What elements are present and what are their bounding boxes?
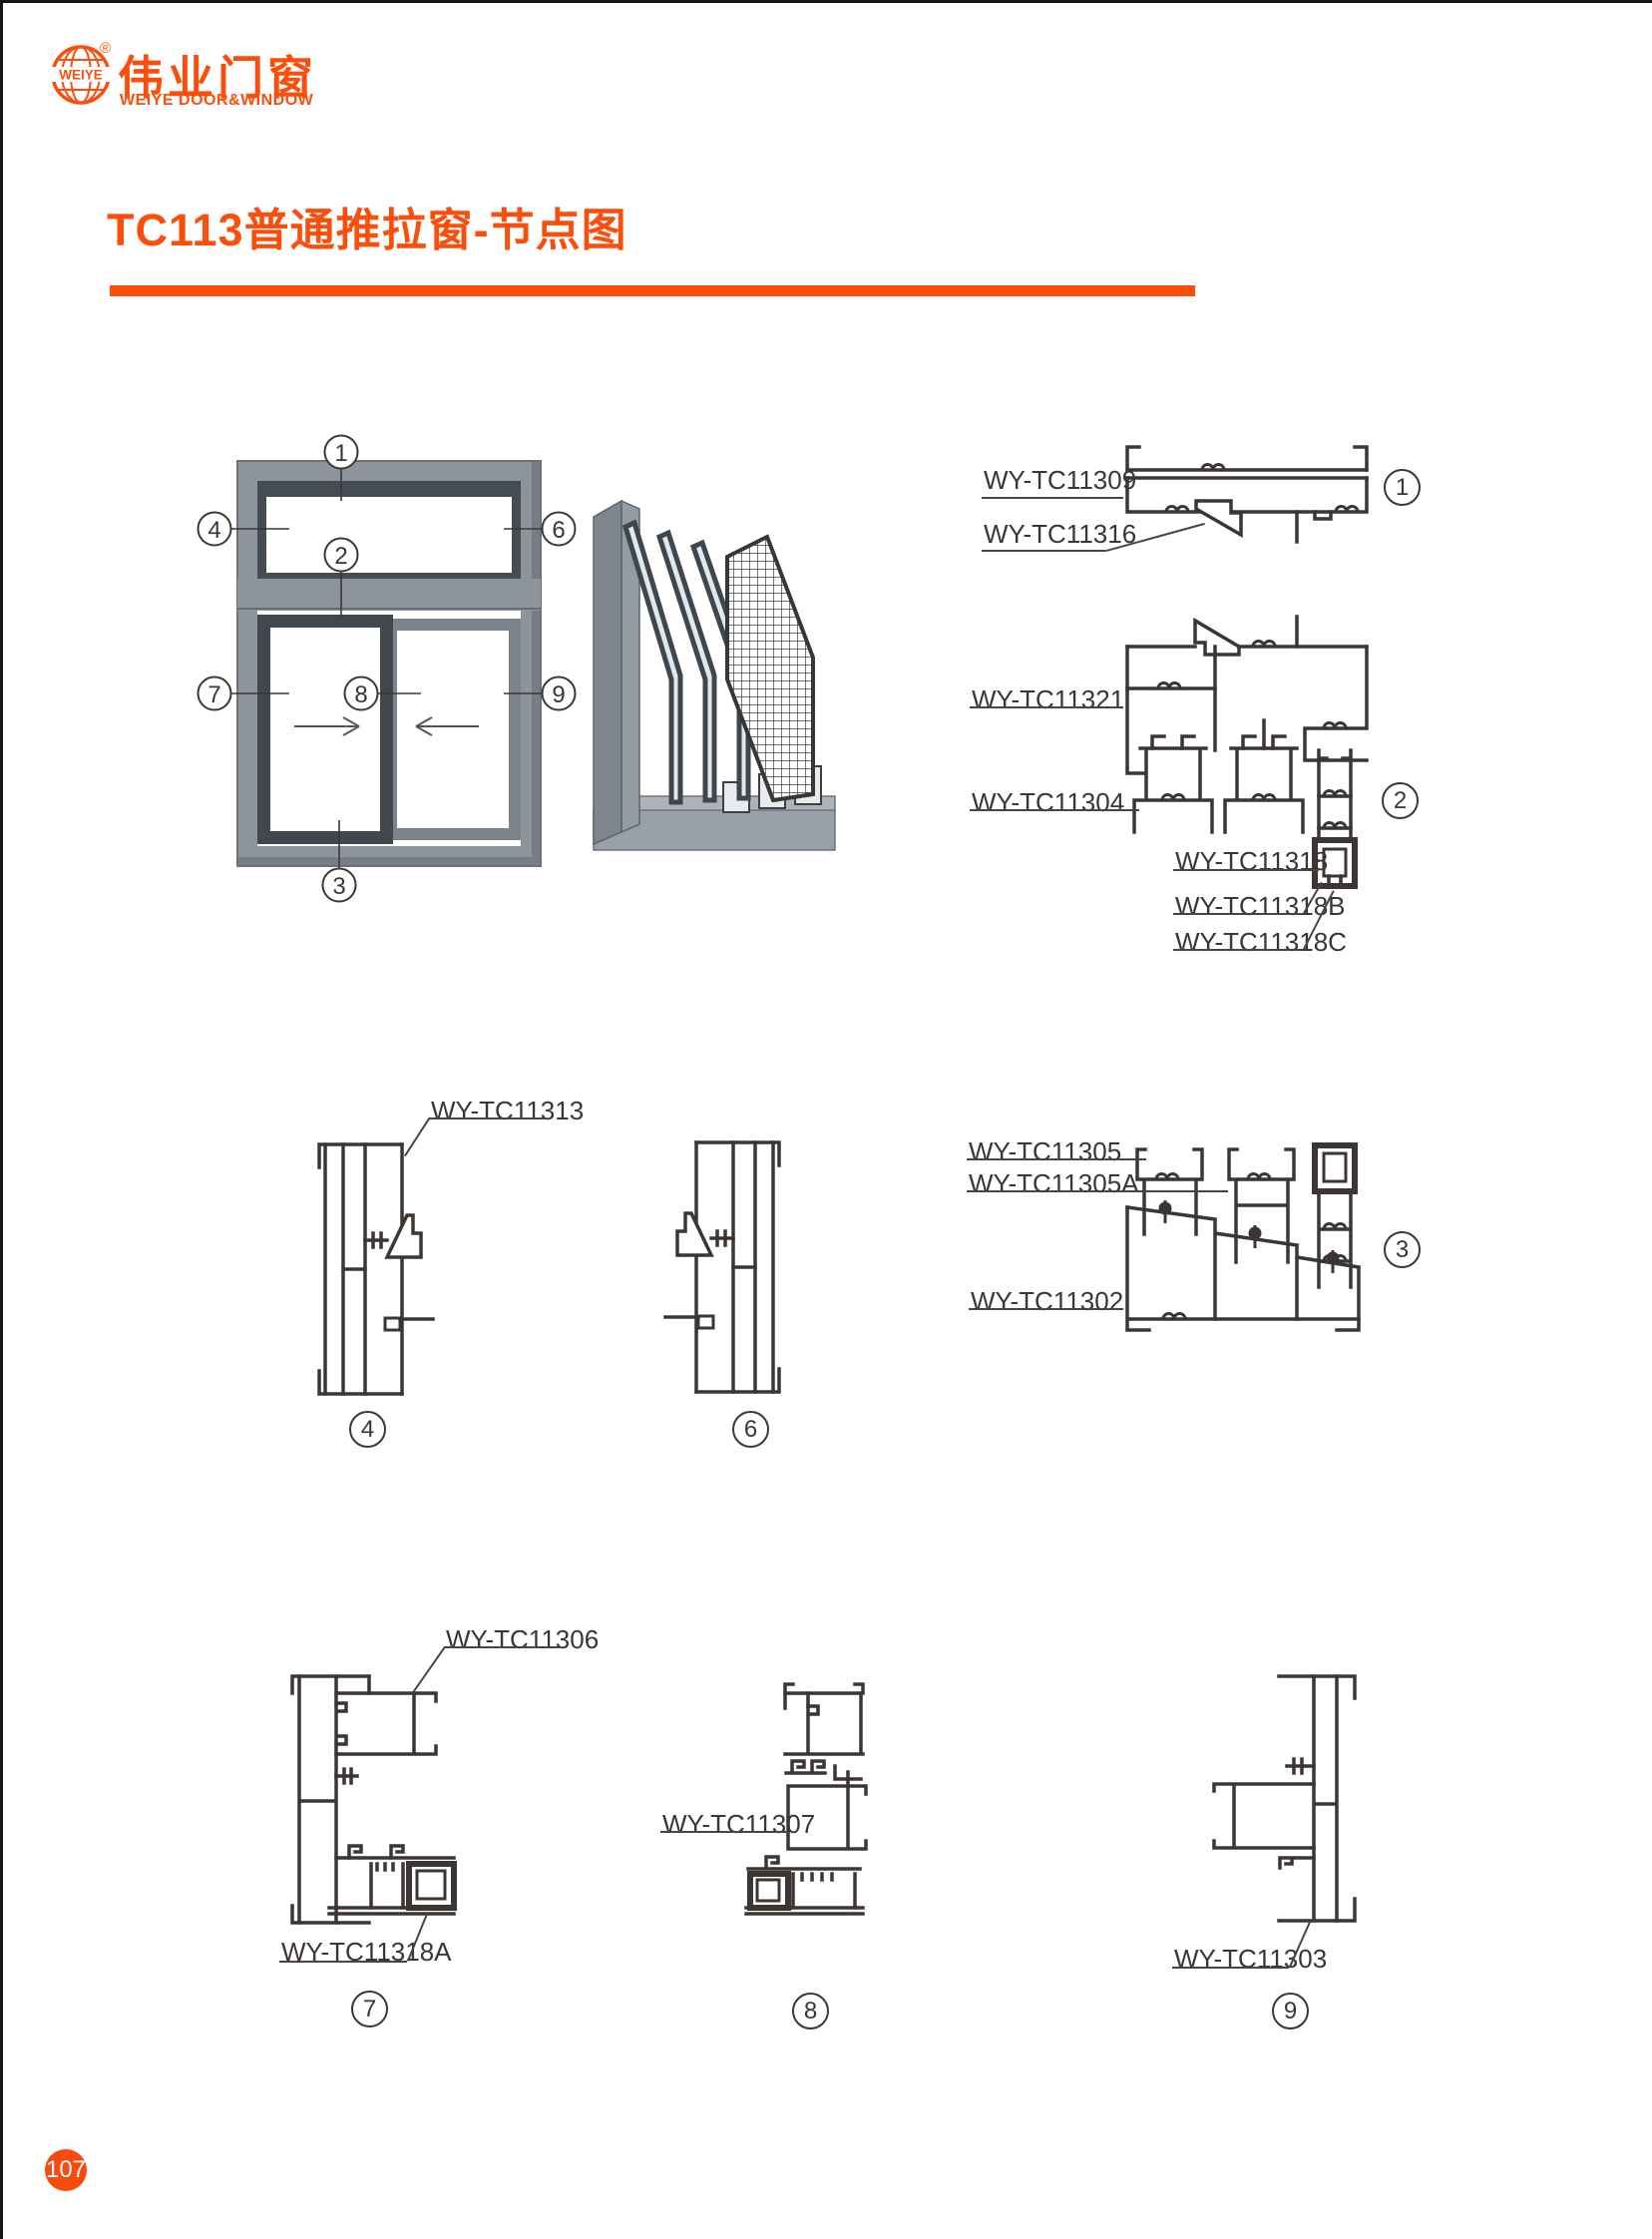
leader-line [982,497,1123,499]
part-label: WY-TC11303 [1174,1944,1327,1975]
part-label: WY-TC11318A [281,1937,452,1968]
detail-7-drawing [287,1641,462,1936]
leader-line [1173,913,1303,915]
part-label: WY-TC11306 [446,1624,599,1655]
page-title: TC113普通推拉窗-节点图 [107,194,627,258]
detail-7-badge: 7 [351,1991,388,2027]
part-label: WY-TC11305A [969,1168,1139,1199]
callout-6: 6 [552,517,565,544]
detail-8-badge: 8 [792,1993,829,2029]
part-label: WY-TC11321 [972,684,1124,715]
globe-label: WEIYE [59,68,103,83]
callout-2: 2 [334,543,347,570]
right-sash-glass [397,631,509,828]
leader-line [967,1190,1228,1192]
glazing-clip [677,1213,711,1255]
leader-line [967,1158,1146,1160]
left-sash-glass [270,628,380,831]
detail-3-drawing [1119,1137,1379,1347]
detail-6-badge: 6 [732,1411,769,1448]
document-page: WEIYE ® 伟业门窗 WEIYE DOOR&WINDOW TC113普通推拉… [0,0,1652,2239]
callout-4: 4 [207,517,220,544]
part-label: WY-TC11302 [971,1286,1123,1317]
detail-4-badge: 4 [349,1411,386,1448]
leader-line [970,706,1121,708]
scan-edge-left [0,0,3,2239]
fixed-pane-glass [266,497,512,573]
glazing-clip [1195,621,1239,655]
leader-line [1173,949,1303,951]
leader-line [1173,869,1319,871]
part-label: WY-TC11313 [431,1096,584,1126]
leader-line [279,1961,407,1963]
detail-4-drawing [317,1137,452,1402]
leader-line [982,550,1106,552]
detail-9-badge: 9 [1272,1993,1309,2029]
title-rule [110,285,1195,296]
scan-edge-top [0,0,1652,3]
registered-mark: ® [100,40,111,57]
callout-1: 1 [334,440,347,467]
detail-6-drawing [646,1135,781,1400]
callout-3: 3 [332,873,345,900]
glazing-clip [1196,501,1241,535]
part-label: WY-TC11304 [972,787,1124,818]
leader-line [1172,1967,1289,1969]
outer-frame-slab [594,501,621,844]
part-label: WY-TC11316 [984,519,1136,550]
detail-2-badge: 2 [1382,782,1419,819]
part-label: WY-TC11318C [1175,927,1347,958]
profile-3d-render [574,465,853,859]
transom-bar [237,579,541,611]
page-number-badge: 107 [45,2149,87,2191]
part-label: WY-TC11307 [662,1809,815,1840]
callout-7: 7 [207,681,220,708]
leader-line [429,1118,547,1119]
leader-line [660,1831,788,1833]
brand-name-en: WEIYE DOOR&WINDOW [120,92,313,110]
glazing-clip [387,1215,421,1257]
part-label: WY-TC11309 [984,465,1136,496]
detail-1-badge: 1 [1384,469,1421,506]
part-label: WY-TC11305 [969,1136,1121,1167]
callout-8: 8 [354,681,367,708]
window-elevation-diagram: 1 4 6 2 7 8 9 3 [140,419,609,923]
leader-line [970,809,1139,811]
leader-line [444,1646,562,1648]
leader-line [969,1308,1123,1310]
detail-3-badge: 3 [1384,1231,1421,1268]
callout-9: 9 [552,681,565,708]
detail-8-drawing [740,1646,880,1941]
part-label: WY-TC11318 [1175,846,1328,877]
detail-9-drawing [1202,1646,1367,1941]
